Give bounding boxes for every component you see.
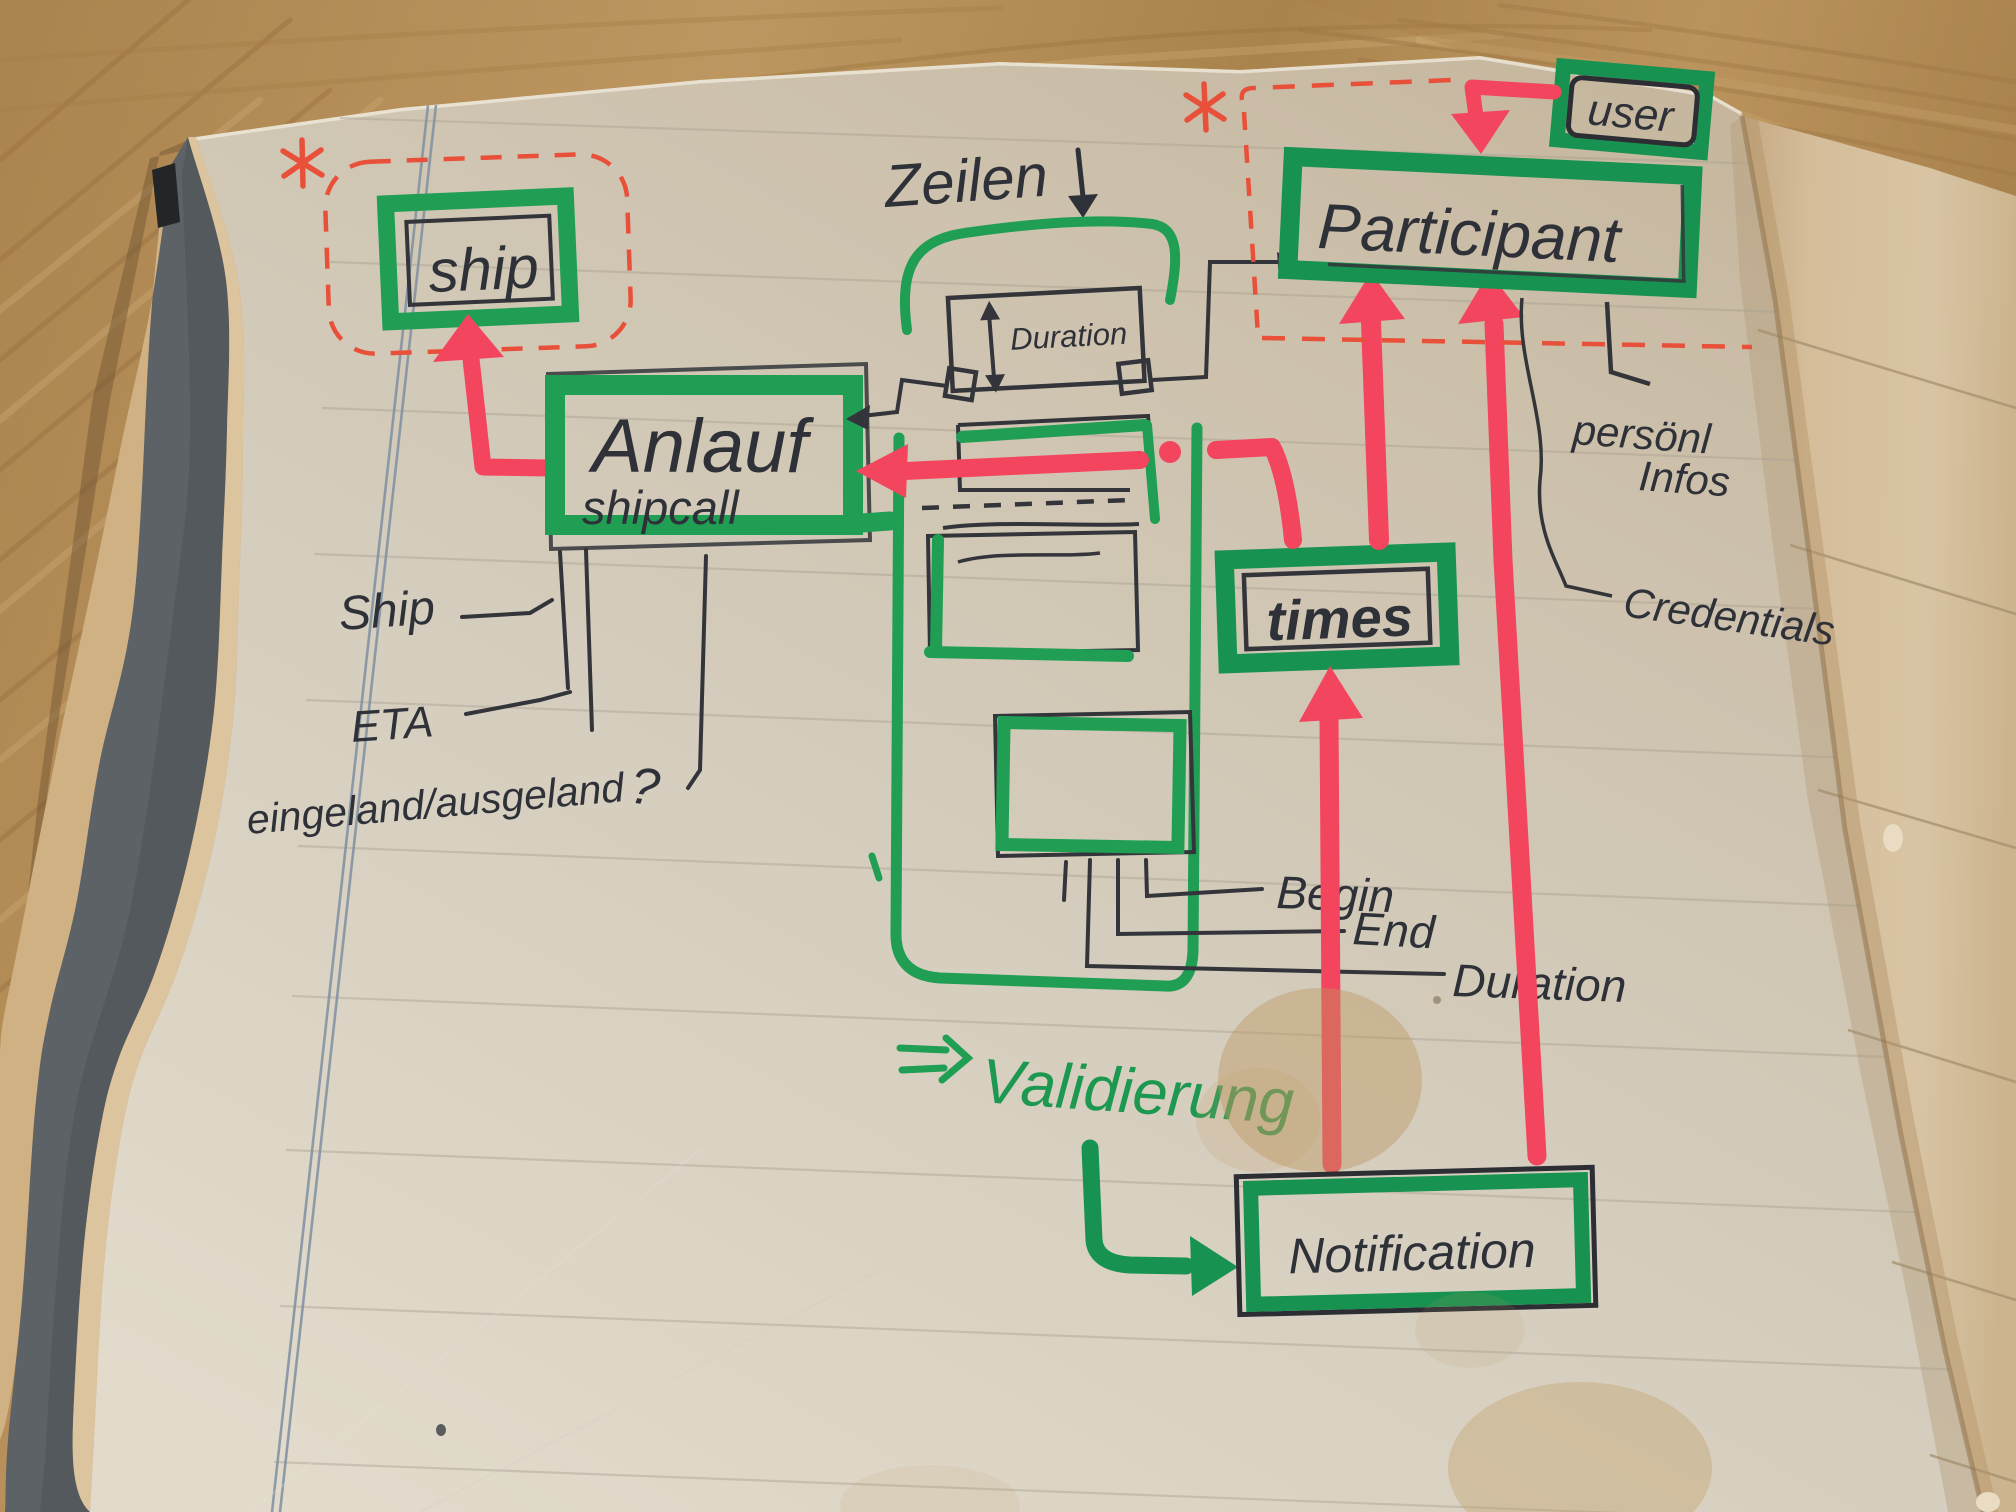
svg-text:ETA: ETA	[349, 697, 435, 752]
svg-text:Notification: Notification	[1288, 1222, 1537, 1284]
svg-text:Participant: Participant	[1316, 190, 1624, 276]
svg-text:Duration: Duration	[1452, 954, 1628, 1012]
svg-text:Ship: Ship	[337, 581, 437, 641]
svg-text:Infos: Infos	[1637, 452, 1731, 505]
svg-text:ship: ship	[427, 233, 540, 305]
svg-text:Anlauf: Anlauf	[588, 404, 814, 489]
svg-text:Zeilen: Zeilen	[880, 142, 1050, 220]
svg-text:Duration: Duration	[1009, 316, 1128, 357]
svg-text:times: times	[1265, 584, 1413, 652]
svg-text:user: user	[1586, 85, 1678, 141]
svg-text:End: End	[1351, 902, 1437, 958]
svg-text:shipcall: shipcall	[582, 481, 740, 534]
